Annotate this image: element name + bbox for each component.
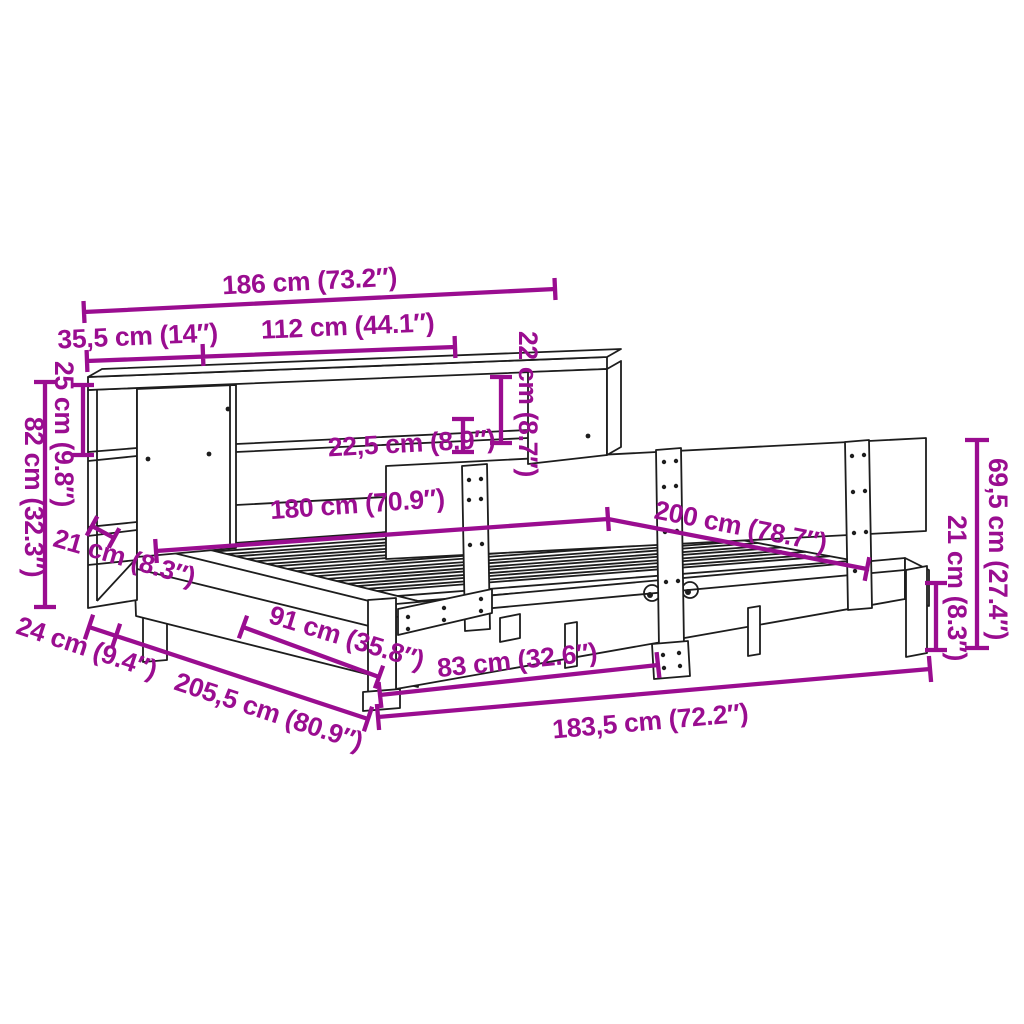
dim-label-112: 112 cm (44.1″) xyxy=(260,307,435,345)
dim-label-24: 24 cm (9.4″) xyxy=(13,610,161,684)
dim-label-186: 186 cm (73.2″) xyxy=(221,262,397,301)
post-middle xyxy=(656,448,684,648)
left-cubby-unit xyxy=(88,388,137,608)
door-panel xyxy=(137,385,236,557)
dim-label-183-5: 183,5 cm (72.2″) xyxy=(551,698,749,745)
support-stub xyxy=(748,606,760,656)
diagram-canvas: 186 cm (73.2″) 35,5 cm (14″) 112 cm (44.… xyxy=(0,0,1024,1024)
dim-label-82: 82 cm (32.3″) xyxy=(19,417,49,578)
dim-label-35-5: 35,5 cm (14″) xyxy=(57,318,219,355)
dim-label-22-5: 22,5 cm (8.9″) xyxy=(327,424,496,463)
dim-label-69-5: 69,5 cm (27.4″) xyxy=(983,458,1013,640)
post-right xyxy=(845,440,872,610)
right-box-side xyxy=(607,361,621,455)
dim-label-22: 22 cm (8.7″) xyxy=(513,331,543,477)
dim-leg-height-right: 21 cm (8.3″) xyxy=(925,515,972,661)
dim-label-205-5: 205,5 cm (80.9″) xyxy=(171,666,367,756)
right-leg xyxy=(906,566,927,657)
apron-block xyxy=(500,614,520,642)
dim-shelf-opening-height: 22,5 cm (8.9″) xyxy=(327,419,496,462)
bed-dimension-diagram: 186 cm (73.2″) 35,5 cm (14″) 112 cm (44.… xyxy=(0,0,1024,1024)
dim-label-21-right: 21 cm (8.3″) xyxy=(942,515,972,661)
